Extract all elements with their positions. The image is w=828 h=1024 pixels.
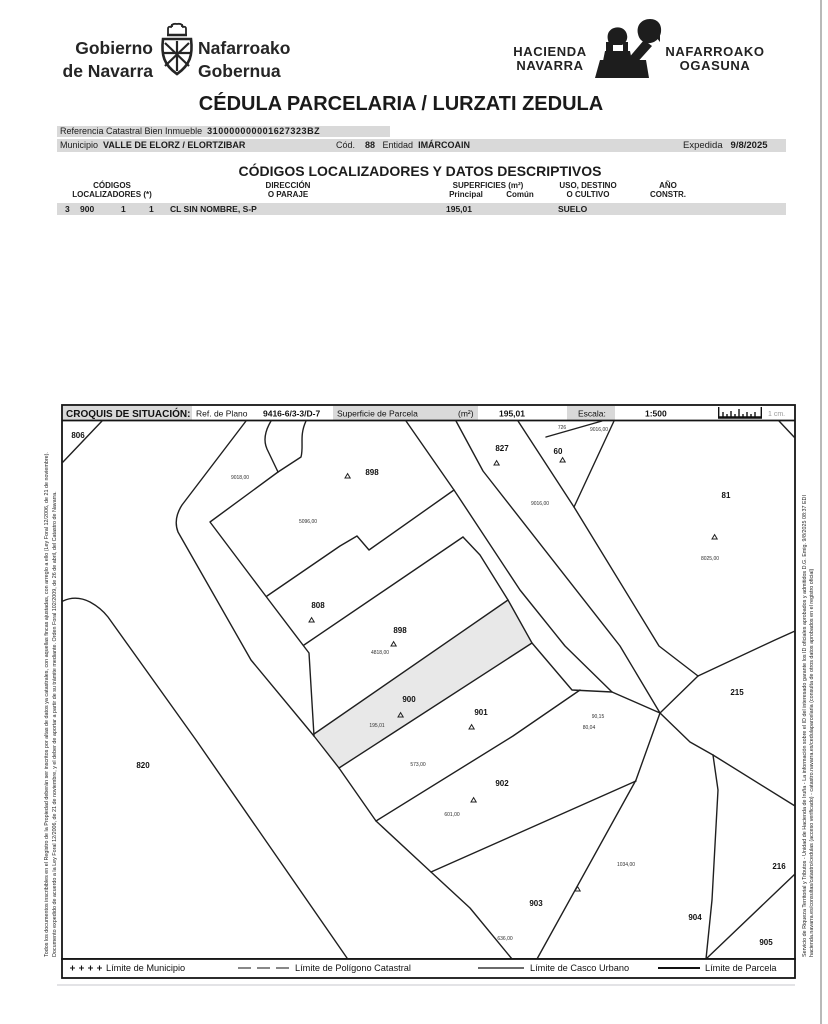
- svg-text:9416-6/3-3/D-7: 9416-6/3-3/D-7: [263, 409, 320, 419]
- svg-text:8025,00: 8025,00: [701, 556, 719, 562]
- svg-text:1034,00: 1034,00: [617, 862, 635, 868]
- svg-text:Límite de Parcela: Límite de Parcela: [705, 963, 777, 973]
- svg-text:195,01: 195,01: [369, 723, 385, 729]
- svg-text:4818,00: 4818,00: [371, 650, 389, 656]
- svg-text:636,00: 636,00: [497, 936, 513, 942]
- svg-text:Límite de Casco Urbano: Límite de Casco Urbano: [530, 963, 629, 973]
- svg-text:573,00: 573,00: [410, 762, 426, 768]
- svg-text:9018,00: 9018,00: [231, 475, 249, 481]
- svg-text:Servicio de Riqueza Territoria: Servicio de Riqueza Territorial y Tribut…: [802, 495, 808, 957]
- svg-text:903: 903: [529, 899, 543, 908]
- svg-text:9016,00: 9016,00: [590, 427, 608, 433]
- svg-text:1:500: 1:500: [645, 409, 667, 419]
- svg-text:900: 900: [402, 695, 416, 704]
- svg-text:1 cm.: 1 cm.: [768, 411, 785, 418]
- svg-text:Superficie de Parcela: Superficie de Parcela: [337, 409, 418, 419]
- svg-text:901: 901: [474, 708, 488, 717]
- svg-text:5096,00: 5096,00: [299, 519, 317, 525]
- svg-text:Ref. de Plano: Ref. de Plano: [196, 409, 248, 419]
- svg-text:216: 216: [772, 862, 786, 871]
- svg-text:827: 827: [495, 444, 509, 453]
- svg-text:Escala:: Escala:: [578, 409, 606, 419]
- svg-text:898: 898: [393, 626, 407, 635]
- svg-text:806: 806: [71, 431, 85, 440]
- svg-text:hacienda.navarra.es/consultas/: hacienda.navarra.es/consultas/catastro/c…: [809, 568, 815, 957]
- svg-text:60: 60: [554, 447, 563, 456]
- svg-text:601,00: 601,00: [444, 812, 460, 818]
- svg-text:CROQUIS DE SITUACIÓN:: CROQUIS DE SITUACIÓN:: [66, 407, 190, 420]
- svg-text:80,04: 80,04: [583, 725, 596, 731]
- svg-text:808: 808: [311, 601, 325, 610]
- svg-text:902: 902: [495, 779, 509, 788]
- svg-text:898: 898: [365, 468, 379, 477]
- svg-text:(m²): (m²): [458, 409, 474, 419]
- svg-text:90,15: 90,15: [592, 714, 605, 720]
- svg-text:215: 215: [730, 688, 744, 697]
- svg-text:905: 905: [759, 938, 773, 947]
- svg-text:820: 820: [136, 761, 150, 770]
- svg-text:195,01: 195,01: [499, 409, 525, 419]
- svg-text:Todos los documentos inscribib: Todos los documentos inscribibles en el …: [44, 452, 50, 957]
- svg-text:904: 904: [688, 913, 702, 922]
- svg-text:Límite de Municipio: Límite de Municipio: [106, 963, 185, 973]
- svg-text:726: 726: [558, 425, 567, 431]
- svg-text:Límite de Polígono Catastral: Límite de Polígono Catastral: [295, 963, 411, 973]
- svg-text:9016,00: 9016,00: [531, 501, 549, 507]
- svg-text:81: 81: [722, 491, 731, 500]
- svg-text:Documento expedido de acuerdo: Documento expedido de acuerdo a la Ley F…: [52, 491, 58, 957]
